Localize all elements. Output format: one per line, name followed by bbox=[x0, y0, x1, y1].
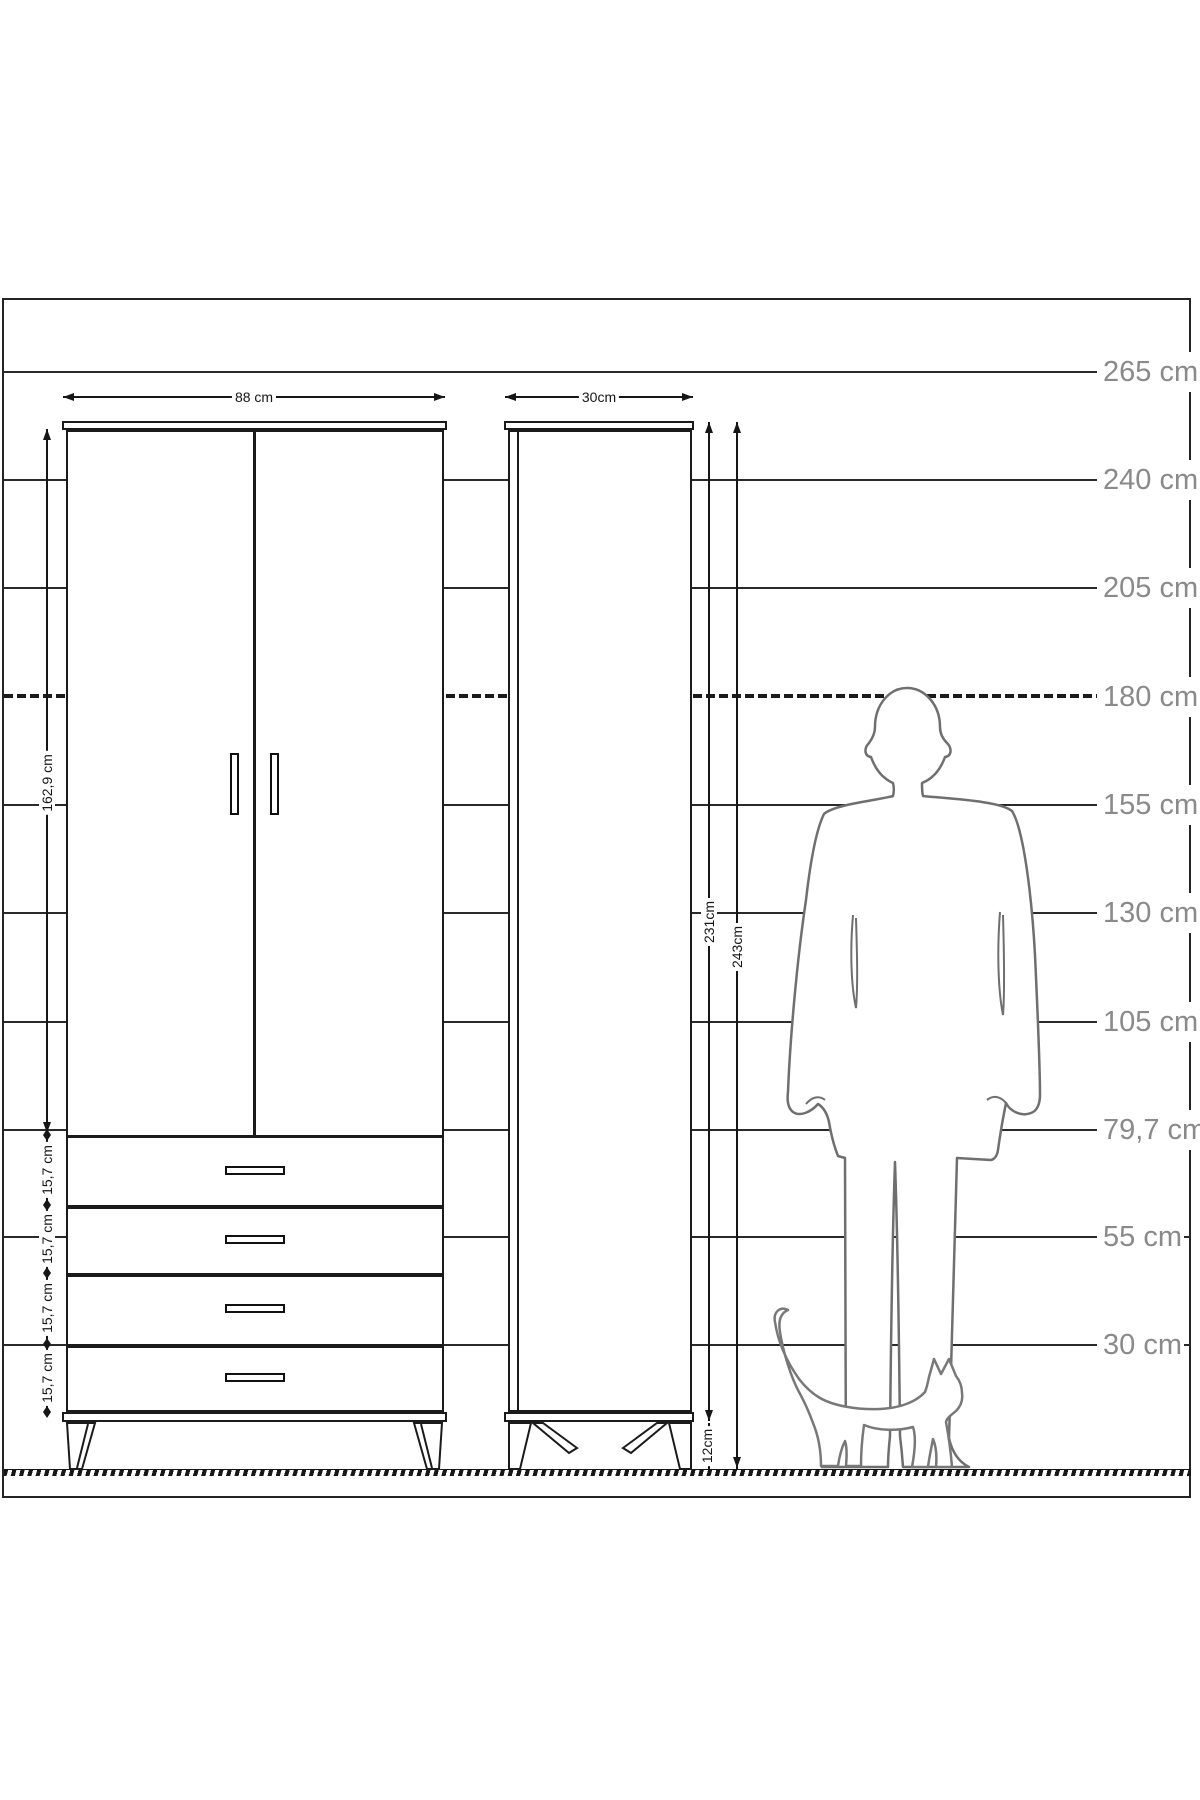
drawer-height-label-4: 15,7 cm bbox=[39, 1350, 55, 1406]
drawer-height-label-2: 15,7 cm bbox=[39, 1211, 55, 1267]
ruler-label-265: 265 cm bbox=[1097, 352, 1200, 392]
drawer-section-top-line bbox=[68, 1135, 442, 1138]
drawer-height-label-1: 15,7 cm bbox=[39, 1142, 55, 1198]
side-cabinet-front-edge-line bbox=[517, 432, 519, 1410]
drawer-handle-1 bbox=[225, 1166, 285, 1175]
man-silhouette bbox=[788, 688, 1040, 1467]
ruler-label-55: 55 cm bbox=[1097, 1217, 1184, 1257]
ruler-label-155: 155 cm bbox=[1097, 785, 1200, 825]
drawer-divider-1 bbox=[68, 1205, 442, 1209]
right-door-handle bbox=[270, 753, 279, 815]
door-height-dimension-label: 162,9 cm bbox=[39, 751, 55, 815]
drawer-divider-2 bbox=[68, 1273, 442, 1277]
side-depth-dimension-label: 30cm bbox=[579, 389, 619, 405]
ruler-label-180: 180 cm bbox=[1097, 677, 1200, 717]
ruler-label-205: 205 cm bbox=[1097, 568, 1200, 608]
ruler-label-79: 79,7 cm bbox=[1097, 1110, 1200, 1150]
side-cabinet-body bbox=[508, 430, 692, 1412]
side-cabinet-bottom-board bbox=[504, 1412, 694, 1422]
front-wardrobe-bottom-board bbox=[62, 1412, 447, 1422]
front-wardrobe-top-board bbox=[62, 421, 447, 430]
leg-height-dimension-label: 12cm bbox=[699, 1426, 715, 1466]
drawer-height-label-3: 15,7 cm bbox=[39, 1280, 55, 1336]
ruler-label-105: 105 cm bbox=[1097, 1002, 1200, 1042]
front-width-dimension-label: 88 cm bbox=[232, 389, 276, 405]
ruler-label-130: 130 cm bbox=[1097, 893, 1200, 933]
ruler-label-30: 30 cm bbox=[1097, 1325, 1184, 1365]
total-height-dimension-label: 243cm bbox=[729, 923, 745, 971]
drawer-handle-4 bbox=[225, 1373, 285, 1382]
ruler-label-240: 240 cm bbox=[1097, 460, 1200, 500]
left-door-handle bbox=[230, 753, 239, 815]
side-cabinet-legs bbox=[509, 1423, 691, 1469]
front-wardrobe-legs bbox=[67, 1423, 442, 1469]
drawer-handle-2 bbox=[225, 1235, 285, 1244]
drawer-handle-3 bbox=[225, 1304, 285, 1313]
wardrobe-dimension-drawing: 265 cm 240 cm 205 cm 180 cm 155 cm 130 c… bbox=[0, 0, 1200, 1800]
drawer-divider-3 bbox=[68, 1344, 442, 1348]
front-wardrobe-door-split bbox=[253, 432, 256, 1135]
carcass-height-dimension-label: 231cm bbox=[701, 898, 717, 946]
side-cabinet-top-board bbox=[504, 421, 694, 430]
